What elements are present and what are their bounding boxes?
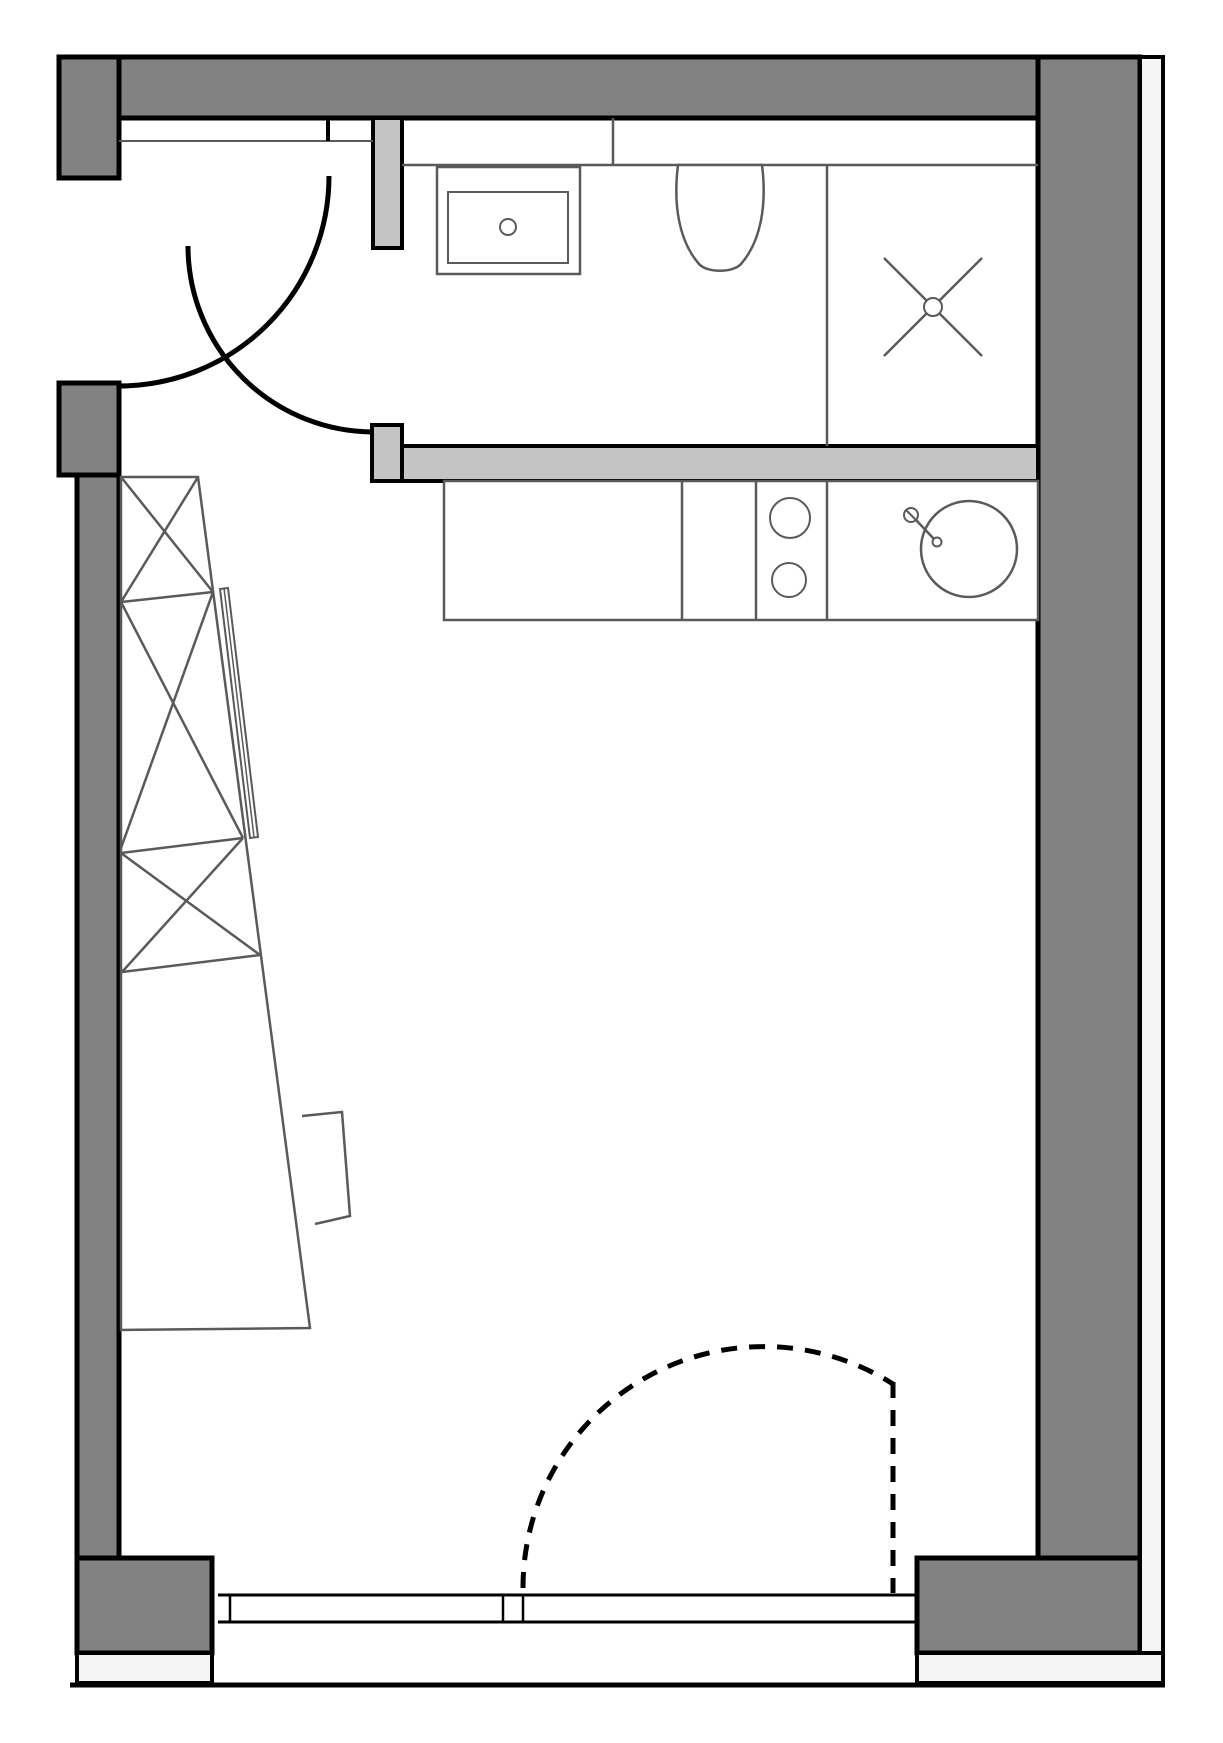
top-wall xyxy=(59,57,1140,118)
bottom-right-wall-block xyxy=(917,1558,1140,1653)
vanity-drain xyxy=(500,219,516,235)
bathroom-door-stub xyxy=(372,425,402,481)
bottom-left-exterior-strip xyxy=(77,1653,212,1683)
faucet-spout xyxy=(933,538,942,547)
shower-drain-circle xyxy=(924,298,942,316)
hob-burner-1 xyxy=(770,498,810,538)
bottom-left-wall-block xyxy=(77,1558,212,1653)
kitchen-layer xyxy=(444,481,1038,620)
kitchen-sink-bowl xyxy=(921,501,1017,597)
entry-door-jamb xyxy=(373,118,402,248)
floor-plan-page xyxy=(0,0,1223,1743)
left-wall-lower xyxy=(77,475,119,1558)
left-wall-upper xyxy=(59,57,119,178)
right-exterior-strip xyxy=(1140,57,1163,1683)
bathroom-partition-wall xyxy=(402,446,1038,481)
right-wall xyxy=(1038,57,1140,1653)
left-wall-mid xyxy=(59,383,119,475)
floor-plan-drawing xyxy=(0,0,1223,1743)
bottom-right-exterior-strip xyxy=(917,1653,1163,1683)
hob-burner-2 xyxy=(772,563,806,597)
